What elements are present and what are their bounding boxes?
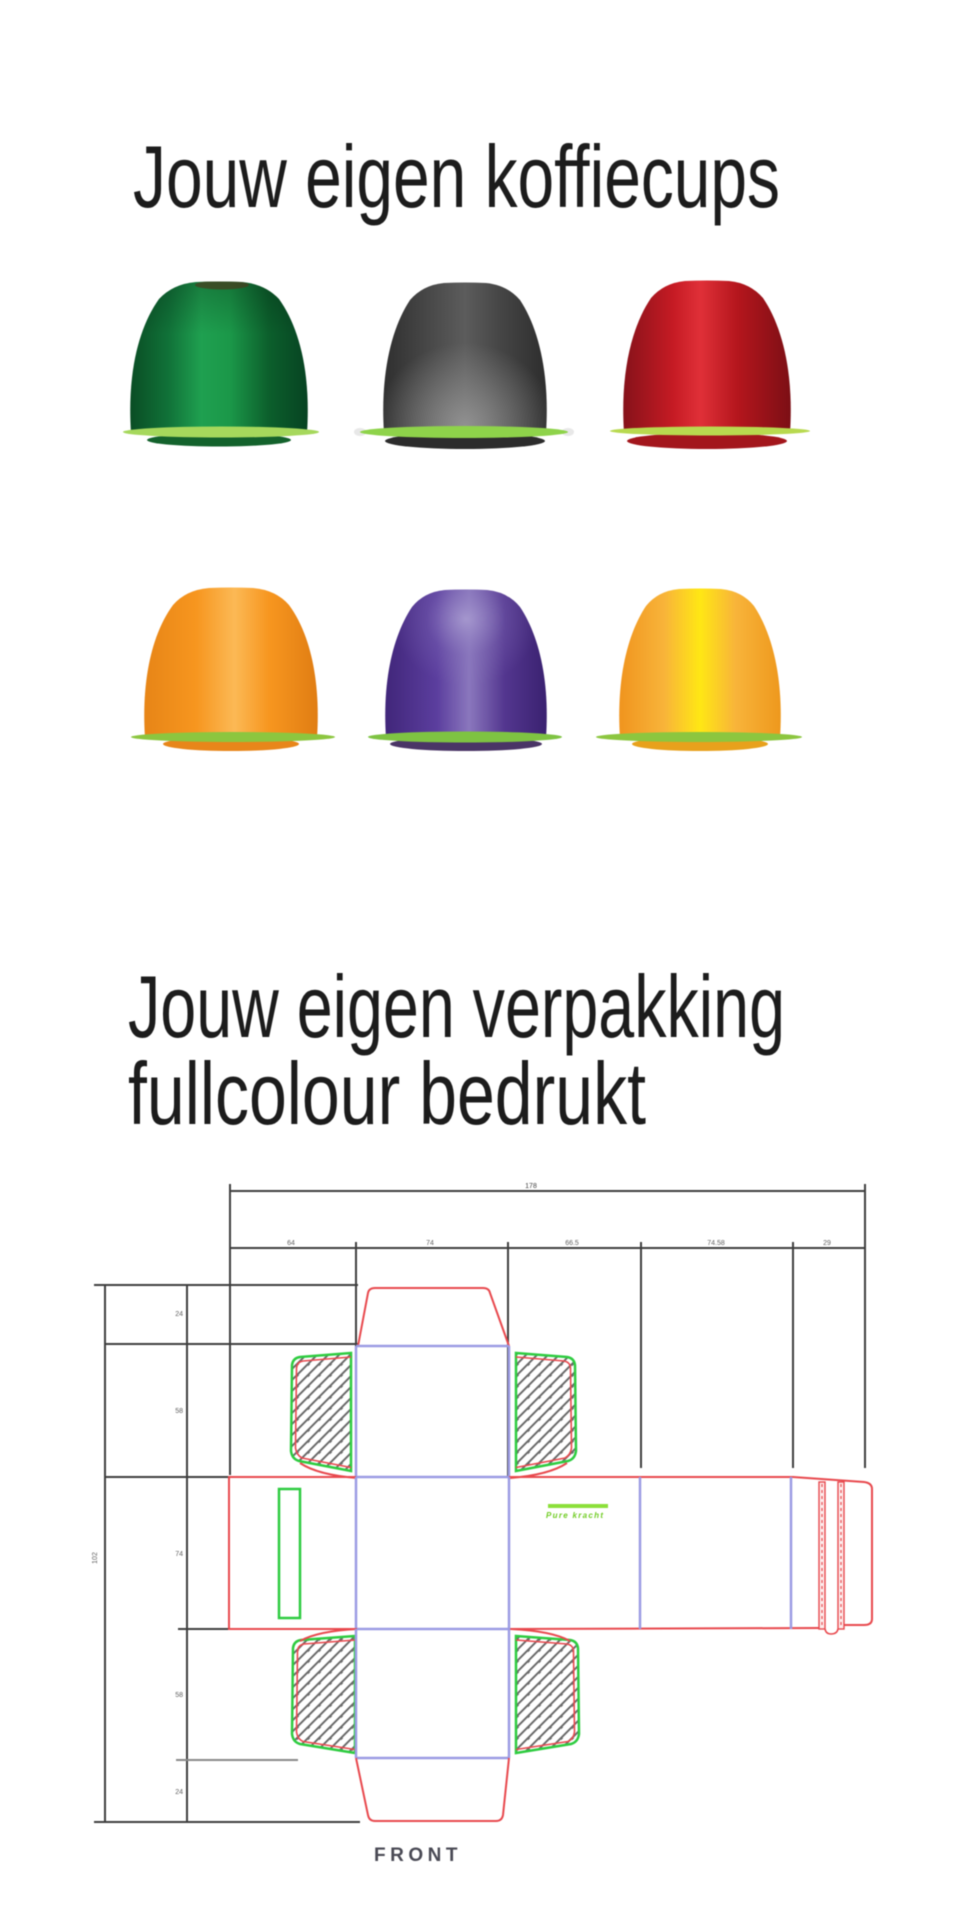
svg-text:Jouw eigen verpakking: Jouw eigen verpakking bbox=[128, 957, 785, 1056]
svg-text:24: 24 bbox=[175, 1789, 183, 1796]
svg-text:74.58: 74.58 bbox=[707, 1240, 725, 1247]
svg-text:102: 102 bbox=[92, 1552, 99, 1564]
svg-text:Jouw eigen koffiecups: Jouw eigen koffiecups bbox=[133, 127, 780, 226]
svg-text:fullcolour bedrukt: fullcolour bedrukt bbox=[128, 1044, 646, 1143]
svg-text:66.5: 66.5 bbox=[565, 1240, 579, 1247]
svg-text:58: 58 bbox=[175, 1408, 183, 1415]
svg-text:74: 74 bbox=[426, 1240, 434, 1247]
svg-text:29: 29 bbox=[823, 1240, 831, 1247]
svg-text:58: 58 bbox=[175, 1692, 183, 1699]
svg-text:178: 178 bbox=[525, 1183, 537, 1190]
svg-text:74: 74 bbox=[175, 1551, 183, 1558]
svg-text:24: 24 bbox=[175, 1311, 183, 1318]
svg-text:64: 64 bbox=[287, 1240, 295, 1247]
svg-text:Pure kracht: Pure kracht bbox=[546, 1511, 604, 1520]
svg-text:FRONT: FRONT bbox=[374, 1845, 462, 1866]
